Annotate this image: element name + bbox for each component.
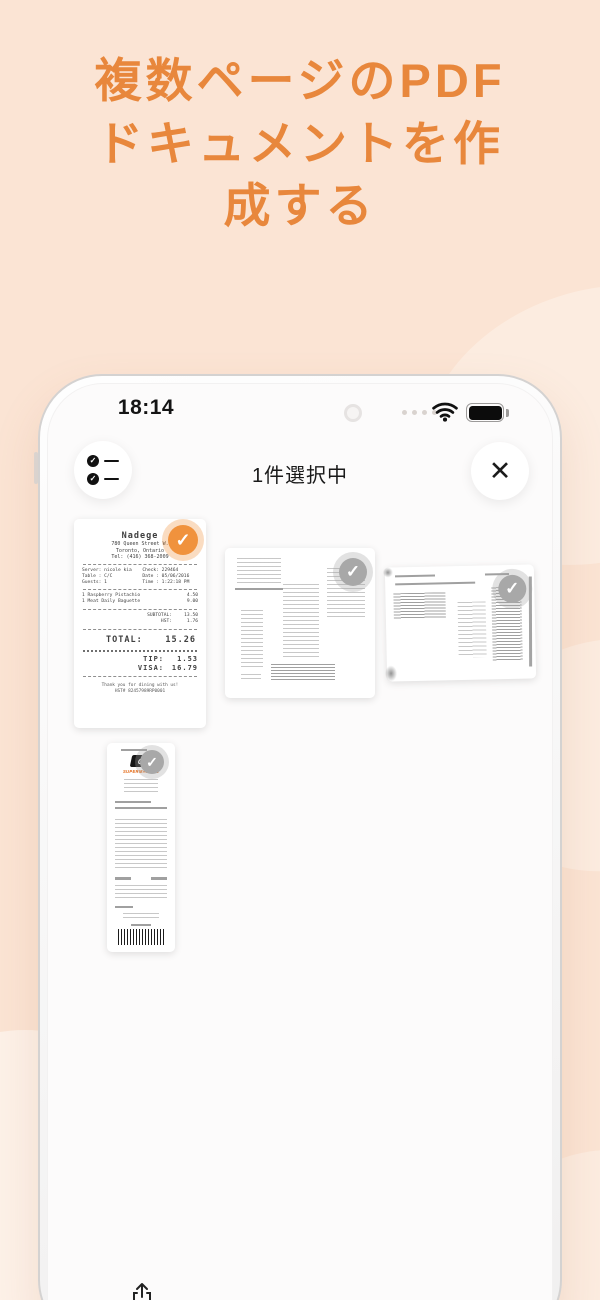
- phone-mockup: 18:14 ✓ ✓: [38, 374, 562, 1300]
- barcode: [118, 929, 164, 945]
- check-icon: ✓: [339, 558, 367, 586]
- page-title: 複数ページのPDF ドキュメントを作 成する: [0, 50, 600, 238]
- scan-content: [385, 564, 534, 567]
- phone-screen: 18:14 ✓ ✓: [47, 383, 553, 1300]
- wifi-icon: [432, 402, 458, 427]
- unselected-check-badge[interactable]: ✓: [135, 745, 169, 779]
- selected-check-badge[interactable]: ✓: [162, 519, 204, 561]
- status-time: 18:14: [102, 396, 190, 420]
- check-icon: ✓: [168, 525, 198, 555]
- marketing-screenshot: 複数ページのPDF ドキュメントを作 成する 18:14: [0, 0, 600, 1300]
- check-icon: ✓: [140, 750, 164, 774]
- receipt-thumbnail-supermarket[interactable]: ✓ G SUPERMARCHE: [107, 743, 175, 952]
- receipt-thumbnail-2[interactable]: ✓: [225, 548, 375, 698]
- unselected-check-badge[interactable]: ✓: [492, 568, 533, 609]
- receipt-thumbnail-3[interactable]: ✓: [385, 564, 536, 681]
- unselected-check-badge[interactable]: ✓: [333, 552, 373, 592]
- check-icon: ✓: [498, 575, 527, 604]
- camera-hole: [344, 404, 362, 422]
- receipt-thumbnail-nadege[interactable]: ✓ Nadege 780 Queen Street W. Toronto, On…: [74, 519, 206, 728]
- close-button[interactable]: ✕: [471, 442, 529, 500]
- close-icon: ✕: [489, 458, 512, 485]
- share-icon[interactable]: [130, 1281, 154, 1300]
- battery-icon: [466, 403, 504, 422]
